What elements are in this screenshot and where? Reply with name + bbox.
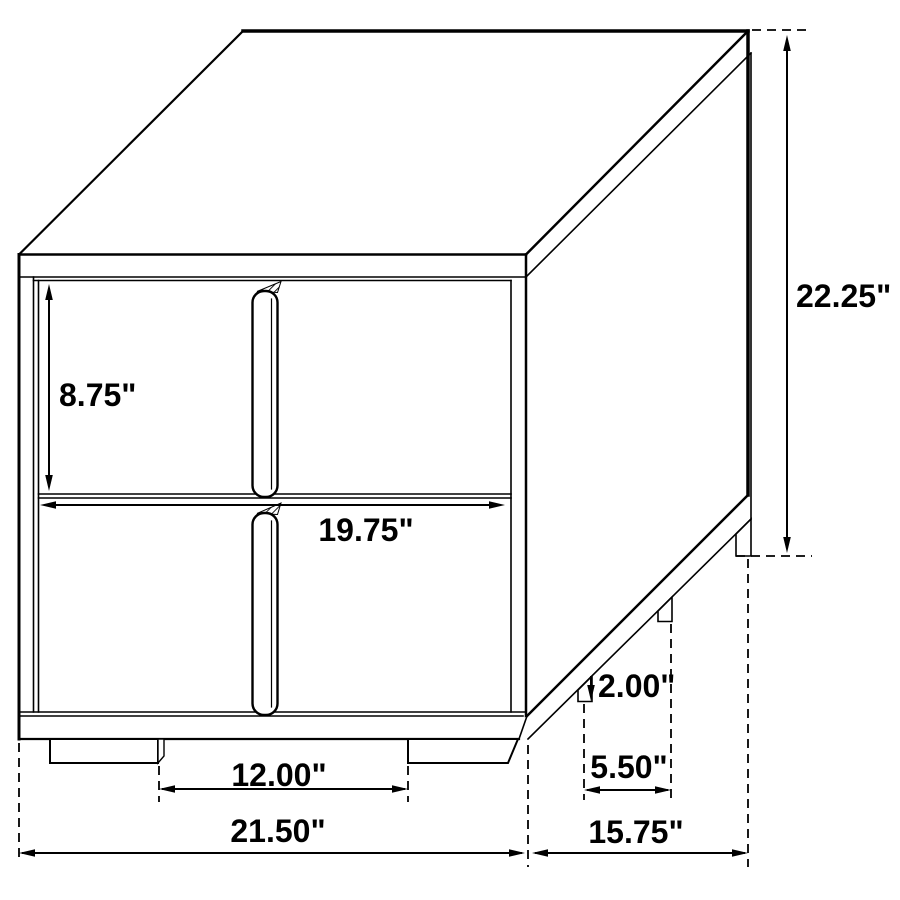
dim-total-height-arrow-up [783, 35, 791, 51]
side-plinth-bottom-edge [528, 519, 751, 739]
dim-total-width-arrow-right [509, 849, 525, 857]
plinth-corner-bevel [519, 716, 527, 739]
dim-side-leg-spacing: 5.50" [584, 624, 671, 800]
dim-total-depth-arrow-right [732, 849, 748, 857]
front-right-foot [408, 739, 518, 763]
legs [50, 519, 751, 763]
dim-total-width-label: 21.50" [230, 813, 325, 849]
dim-total-width-arrow-left [19, 849, 35, 857]
dim-drawer-height-arrow-up [45, 284, 53, 300]
dim-drawer-height-arrow-down [45, 475, 53, 491]
dim-drawer-height: 8.75" [45, 284, 136, 491]
side-panel [527, 31, 751, 739]
dim-drawer-width-arrow-right [489, 501, 505, 509]
dim-total-depth-label: 15.75" [588, 814, 683, 850]
dim-total-height: 22.25" [736, 30, 891, 556]
dim-drawer-width-arrow-left [40, 501, 56, 509]
dim-side-leg-spacing-arrow-right [655, 786, 671, 794]
top-right-diagonal-edge [526, 31, 748, 255]
front-left-foot-side [158, 739, 164, 763]
dim-side-leg-spacing-label: 5.50" [590, 749, 667, 785]
handle-top-bar [253, 291, 278, 497]
nightstand-dimension-diagram: 8.75" 19.75" 22.25" 2.00" 5 [0, 0, 900, 900]
dim-side-leg-spacing-arrow-left [584, 786, 600, 794]
drawer-handle-top [253, 282, 282, 498]
front-left-foot [50, 739, 158, 763]
dim-front-leg-spacing: 12.00" [159, 757, 408, 802]
diagram-page: 8.75" 19.75" 22.25" 2.00" 5 [0, 0, 900, 900]
dim-front-leg-spacing-arrow-right [392, 785, 408, 793]
dim-total-height-label: 22.25" [796, 278, 891, 314]
top-panel [19, 31, 751, 277]
dim-total-depth-arrow-left [532, 849, 548, 857]
dim-front-leg-spacing-label: 12.00" [231, 757, 326, 793]
dim-drawer-height-label: 8.75" [59, 377, 136, 413]
side-leg-back [658, 597, 672, 622]
dim-leg-height: 2.00" [587, 668, 675, 704]
top-left-diagonal-edge [19, 31, 243, 255]
back-corner-leg [736, 519, 751, 556]
dim-leg-height-label: 2.00" [598, 668, 675, 704]
dim-drawer-width-label: 19.75" [318, 512, 413, 548]
dim-front-leg-spacing-arrow-left [159, 785, 175, 793]
handle-bottom-bar [253, 513, 278, 715]
drawer-handle-bottom [253, 503, 282, 715]
top-slab-side-edge [526, 53, 751, 277]
dim-total-height-arrow-down [783, 537, 791, 553]
